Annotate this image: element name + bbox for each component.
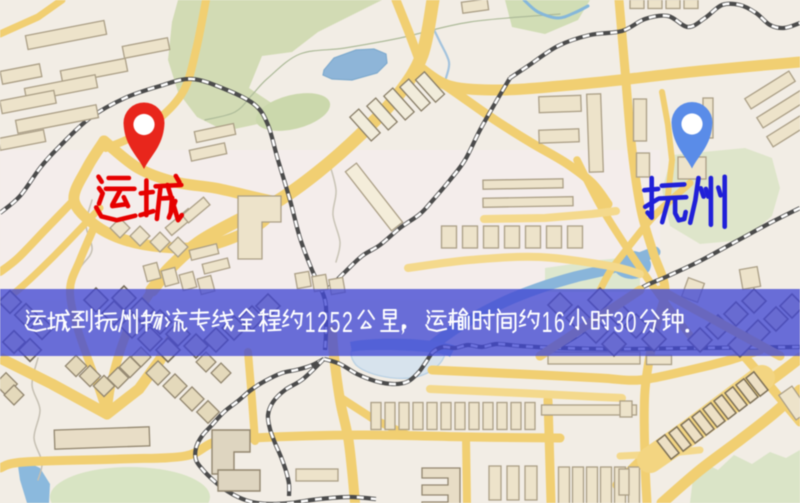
svg-text:5: 5 — [330, 307, 341, 339]
svg-text:0: 0 — [626, 307, 637, 339]
svg-text:6: 6 — [554, 307, 565, 339]
svg-text:1: 1 — [542, 307, 553, 339]
svg-text:1: 1 — [305, 307, 316, 339]
svg-text:2: 2 — [317, 307, 328, 339]
svg-text:3: 3 — [613, 307, 624, 339]
svg-text:2: 2 — [342, 307, 353, 339]
